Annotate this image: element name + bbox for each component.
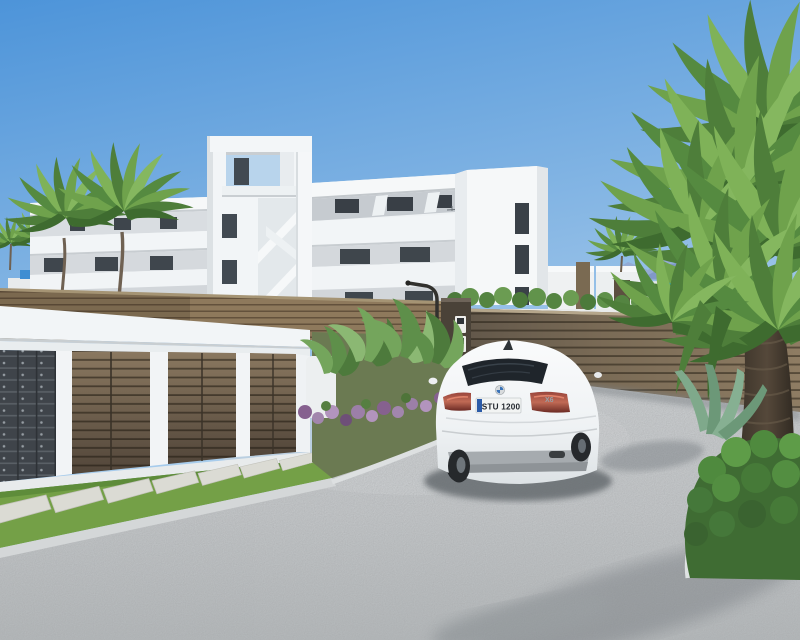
garage-door [168, 352, 236, 464]
stair-tower [207, 136, 312, 316]
side-mirror [594, 372, 602, 378]
garage-pillar [56, 351, 72, 476]
render-scene: X6 STU 1200 [0, 0, 800, 640]
exhaust [549, 451, 565, 458]
model-badge: X6 [545, 397, 554, 404]
side-mirror [429, 378, 438, 385]
building-right-block [455, 166, 548, 305]
license-plate: STU 1200 [476, 398, 521, 413]
tail-light-left [443, 393, 471, 411]
garage-pillar [150, 352, 168, 466]
garage-door [72, 351, 150, 474]
scene-canvas: X6 STU 1200 [0, 0, 800, 640]
garage-pillar [236, 353, 250, 457]
mailbox-bank [0, 350, 56, 482]
bmw-roundel-icon [495, 385, 504, 394]
garage-door [250, 353, 296, 456]
plate-number: STU 1200 [482, 403, 521, 412]
